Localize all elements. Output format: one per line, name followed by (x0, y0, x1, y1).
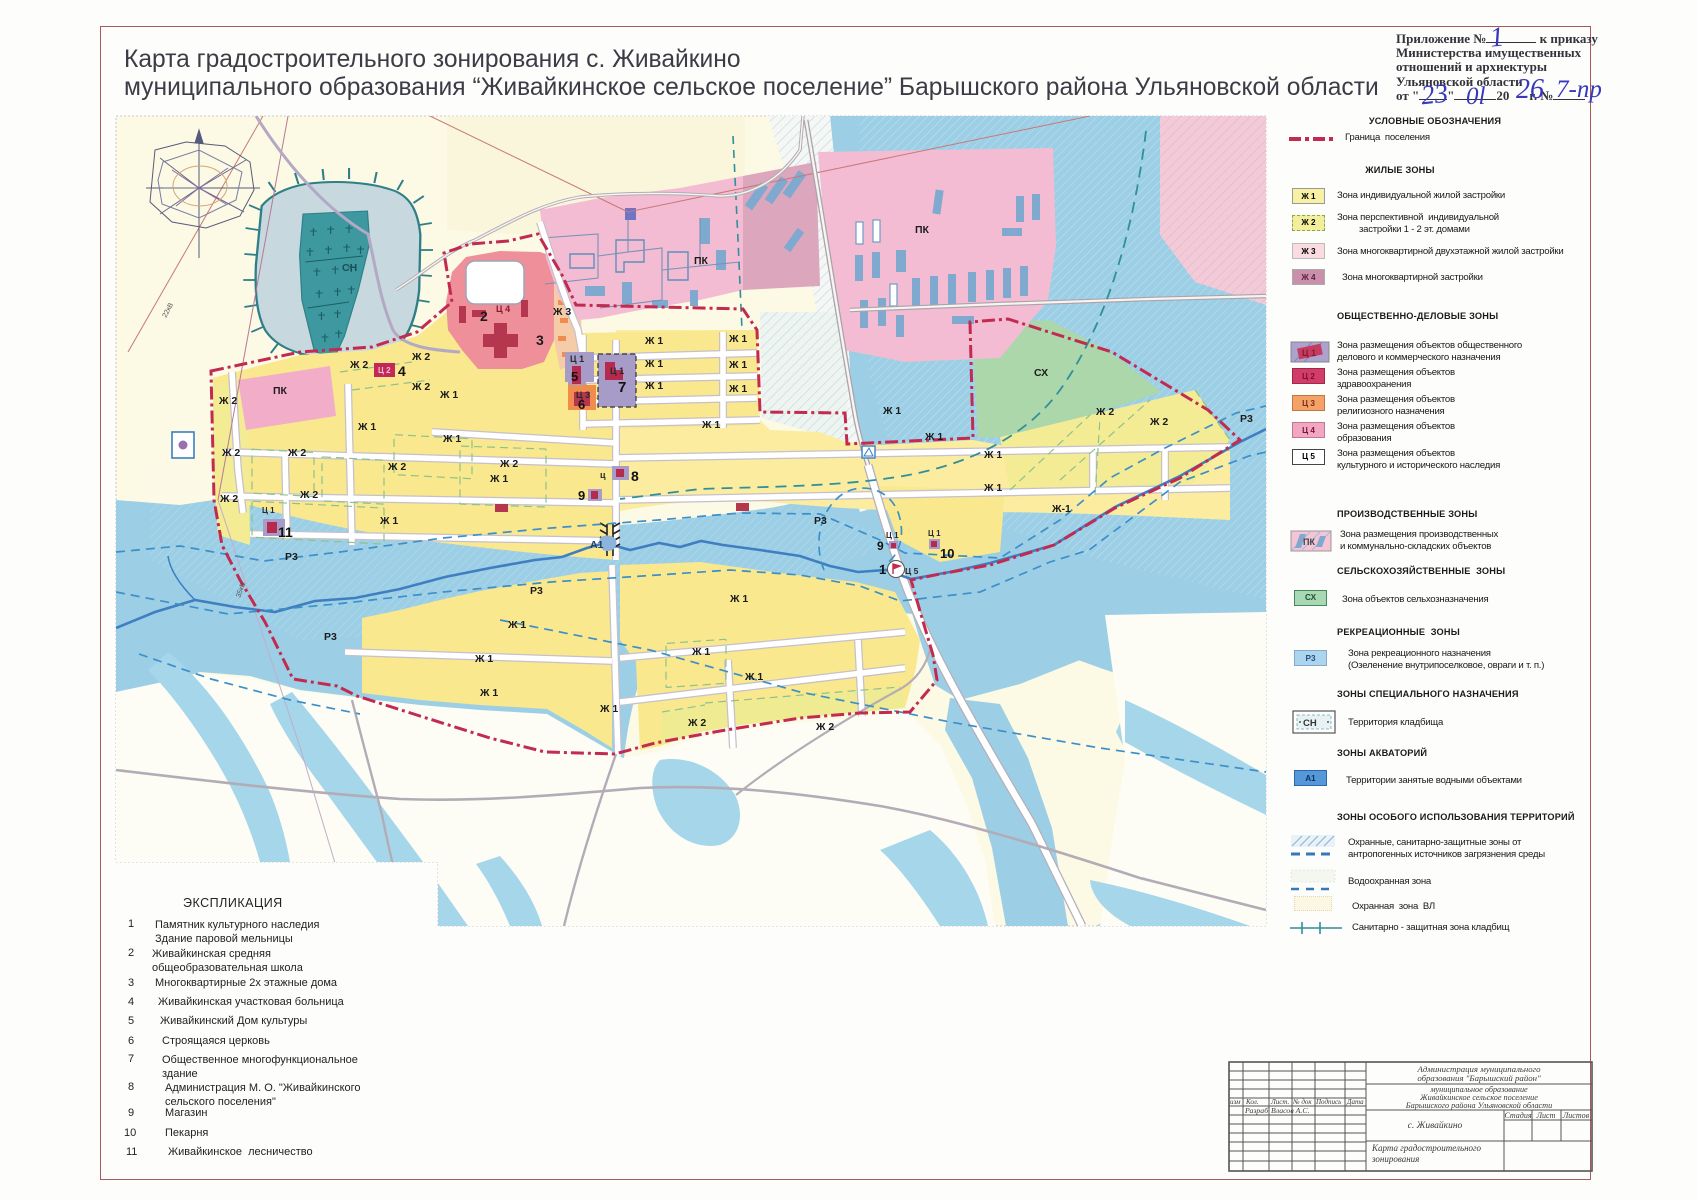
svg-text:Ж 2: Ж 2 (1095, 406, 1114, 418)
svg-text:Ж 1: Ж 1 (489, 473, 508, 485)
svg-text:Ж 2: Ж 2 (687, 717, 706, 729)
svg-text:Подпись: Подпись (1315, 1098, 1341, 1106)
svg-text:Карта градостроительного: Карта градостроительного (1371, 1143, 1482, 1153)
svg-text:Ж 1: Ж 1 (479, 687, 498, 699)
svg-text:Ц 1: Ц 1 (886, 531, 899, 540)
svg-text:6: 6 (578, 397, 585, 412)
svg-text:Дата: Дата (1346, 1098, 1364, 1106)
svg-text:Ж 2: Ж 2 (299, 489, 318, 501)
svg-text:Ж 2: Ж 2 (287, 447, 306, 459)
svg-text:Р3: Р3 (814, 515, 827, 527)
svg-text:Ц 2: Ц 2 (378, 366, 391, 375)
svg-text:Ц 1: Ц 1 (928, 529, 941, 538)
svg-text:3: 3 (536, 332, 544, 348)
svg-text:Разраб: Разраб (1244, 1106, 1269, 1115)
svg-text:изм: изм (1230, 1098, 1241, 1106)
svg-text:2: 2 (480, 308, 488, 324)
svg-text:Ж 1: Ж 1 (644, 358, 663, 370)
svg-text:ПК: ПК (273, 385, 288, 397)
svg-text:Ж 2: Ж 2 (387, 461, 406, 473)
svg-text:Ж 1: Ж 1 (728, 359, 747, 371)
svg-text:Ж 2: Ж 2 (218, 395, 237, 407)
svg-text:Ж 1: Ж 1 (439, 389, 458, 401)
svg-text:Ж 3: Ж 3 (552, 306, 571, 318)
svg-text:Ж 2: Ж 2 (411, 381, 430, 393)
svg-text:Кол.: Кол. (1245, 1098, 1259, 1106)
svg-text:8: 8 (631, 468, 639, 484)
svg-text:№ док: № док (1292, 1098, 1312, 1106)
svg-text:ПК: ПК (1303, 537, 1315, 547)
svg-text:Ж 1: Ж 1 (691, 646, 710, 658)
svg-text:Ж 1: Ж 1 (379, 515, 398, 527)
svg-text:Р3: Р3 (285, 551, 298, 563)
svg-text:Р3: Р3 (530, 585, 543, 597)
svg-text:Ц 4: Ц 4 (496, 304, 510, 314)
svg-text:ПК: ПК (694, 255, 709, 267)
svg-text:ПК: ПК (915, 224, 930, 236)
svg-text:Ц 1: Ц 1 (610, 366, 624, 376)
svg-text:Ж 1: Ж 1 (701, 419, 720, 431)
svg-text:Ж 1: Ж 1 (474, 653, 493, 665)
svg-text:Ж 2: Ж 2 (221, 447, 240, 459)
svg-text:Ц 1: Ц 1 (570, 354, 584, 364)
svg-text:Ж 1: Ж 1 (357, 421, 376, 433)
svg-text:Ж 2: Ж 2 (219, 493, 238, 505)
svg-text:Ж 1: Ж 1 (599, 703, 618, 715)
svg-text:Ж 2: Ж 2 (1149, 416, 1168, 428)
svg-text:Ц 1: Ц 1 (1302, 348, 1316, 358)
svg-text:Ж 1: Ж 1 (729, 593, 748, 605)
svg-text:Р3: Р3 (324, 631, 337, 643)
svg-text:Лист.: Лист. (1270, 1098, 1289, 1106)
svg-text:11: 11 (278, 524, 293, 540)
svg-text:СХ: СХ (1034, 367, 1048, 379)
svg-text:СН: СН (1303, 718, 1317, 729)
svg-text:Ж 1: Ж 1 (728, 333, 747, 345)
svg-text:Ж 2: Ж 2 (499, 458, 518, 470)
svg-text:Власов А.С.: Власов А.С. (1271, 1106, 1310, 1115)
svg-text:Ж 1: Ж 1 (442, 433, 461, 445)
svg-text:СН: СН (342, 262, 357, 274)
svg-text:Ж 1: Ж 1 (882, 405, 901, 417)
svg-text:А1: А1 (590, 539, 604, 551)
svg-text:Ж 2: Ж 2 (815, 721, 834, 733)
svg-text:5: 5 (571, 369, 578, 384)
svg-text:Лист: Лист (1536, 1111, 1556, 1120)
svg-text:7: 7 (618, 379, 626, 396)
svg-text:Ж 2: Ж 2 (411, 351, 430, 363)
svg-text:9: 9 (877, 539, 884, 553)
svg-text:Р3: Р3 (1240, 413, 1253, 425)
svg-text:9: 9 (578, 488, 585, 503)
svg-text:образования "Барышский район": образования "Барышский район" (1417, 1073, 1541, 1083)
svg-text:Ж-1: Ж-1 (1051, 503, 1071, 515)
svg-text:Ж 1: Ж 1 (983, 482, 1002, 494)
svg-text:Ж 1: Ж 1 (644, 335, 663, 347)
svg-text:Ж 1: Ж 1 (507, 619, 526, 631)
svg-text:Ж 1: Ж 1 (924, 431, 943, 443)
svg-text:Ж 2: Ж 2 (349, 359, 368, 371)
svg-text:Ж 1: Ж 1 (983, 449, 1002, 461)
svg-text:Ж 1: Ж 1 (744, 671, 763, 683)
svg-text:ц: ц (600, 470, 606, 480)
svg-text:с. Живайкино: с. Живайкино (1408, 1120, 1463, 1131)
svg-text:Ц 5: Ц 5 (905, 566, 919, 576)
svg-text:1: 1 (879, 562, 886, 577)
svg-text:Ж 1: Ж 1 (644, 380, 663, 392)
svg-text:10: 10 (940, 546, 954, 561)
svg-text:Ж 1: Ж 1 (728, 383, 747, 395)
svg-text:Стадия: Стадия (1504, 1111, 1531, 1120)
svg-text:Ц 1: Ц 1 (262, 506, 275, 515)
svg-text:Листов: Листов (1562, 1111, 1590, 1120)
svg-text:зонирования: зонирования (1371, 1154, 1419, 1164)
svg-text:Барышского района Ульяновской: Барышского района Ульяновской области (1405, 1101, 1552, 1110)
svg-text:4: 4 (398, 363, 406, 379)
